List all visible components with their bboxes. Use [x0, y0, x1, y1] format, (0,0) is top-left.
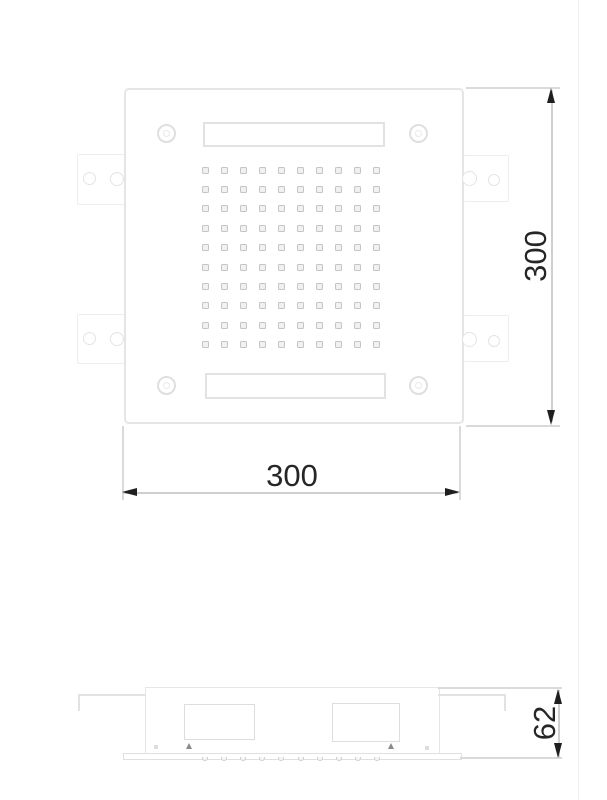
arrowhead-up-icon: [547, 88, 555, 103]
dimension-label-side-height: 62: [527, 706, 563, 740]
side-view-face-plate: [123, 753, 462, 760]
hanger-hook-left: [78, 694, 80, 711]
screw-center-dot: [415, 382, 422, 389]
waterfall-slot-top: [203, 122, 385, 147]
hanger-bracket-right: [438, 694, 506, 696]
waterfall-slot-bottom: [205, 373, 386, 399]
extension-line: [466, 87, 560, 89]
dimension-label-plan-height: 300: [518, 230, 554, 282]
side-view-connection-box-right: [332, 703, 400, 742]
hanger-bracket-left: [78, 694, 145, 696]
screw-center-dot: [163, 382, 170, 389]
bracket-hole: [488, 335, 500, 347]
screw-center-dot: [163, 130, 170, 137]
arrowhead-right-icon: [445, 488, 460, 496]
screw-hole: [157, 376, 176, 395]
hanger-hook-right: [504, 694, 506, 711]
reference-mark-triangle: [186, 743, 192, 749]
screw-hole: [409, 376, 428, 395]
bracket-hole: [83, 172, 96, 185]
dimension-label-plan-width: 300: [266, 458, 318, 494]
screw-hole: [157, 124, 176, 143]
reference-mark-square: [154, 745, 158, 749]
extension-line: [460, 757, 562, 759]
extension-line: [438, 687, 562, 689]
arrowhead-down-icon: [547, 410, 555, 425]
reference-mark-triangle: [388, 743, 394, 749]
bracket-hole: [83, 332, 96, 345]
side-view-connection-box-left: [184, 704, 255, 740]
drawing-canvas: 300 300 62: [0, 0, 607, 800]
arrowhead-down-icon: [554, 743, 562, 758]
bracket-hole: [462, 332, 477, 347]
bracket-hole: [488, 174, 500, 186]
bracket-hole: [110, 332, 124, 346]
extension-line: [466, 425, 560, 427]
arrowhead-up-icon: [554, 689, 562, 704]
bracket-hole: [110, 172, 124, 186]
arrowhead-left-icon: [122, 488, 137, 496]
screw-hole: [409, 124, 428, 143]
reference-mark-square: [425, 746, 429, 750]
screw-center-dot: [415, 130, 422, 137]
bracket-hole: [462, 171, 477, 186]
canvas-edge-line: [578, 0, 579, 800]
